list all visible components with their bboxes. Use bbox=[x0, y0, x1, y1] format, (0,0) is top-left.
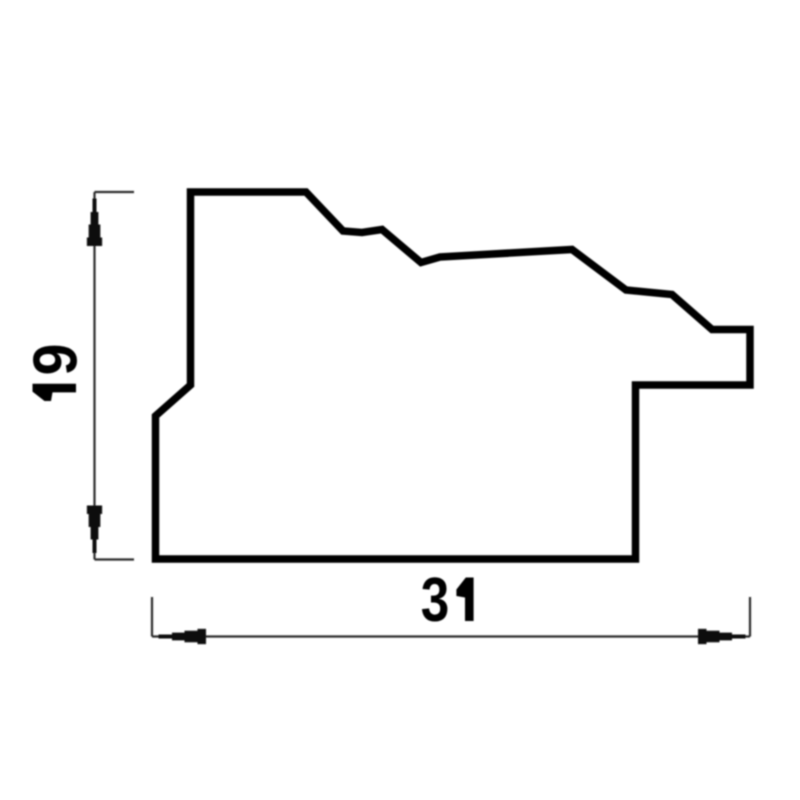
svg-text:3: 3 bbox=[421, 566, 450, 635]
svg-text:9: 9 bbox=[22, 344, 91, 376]
